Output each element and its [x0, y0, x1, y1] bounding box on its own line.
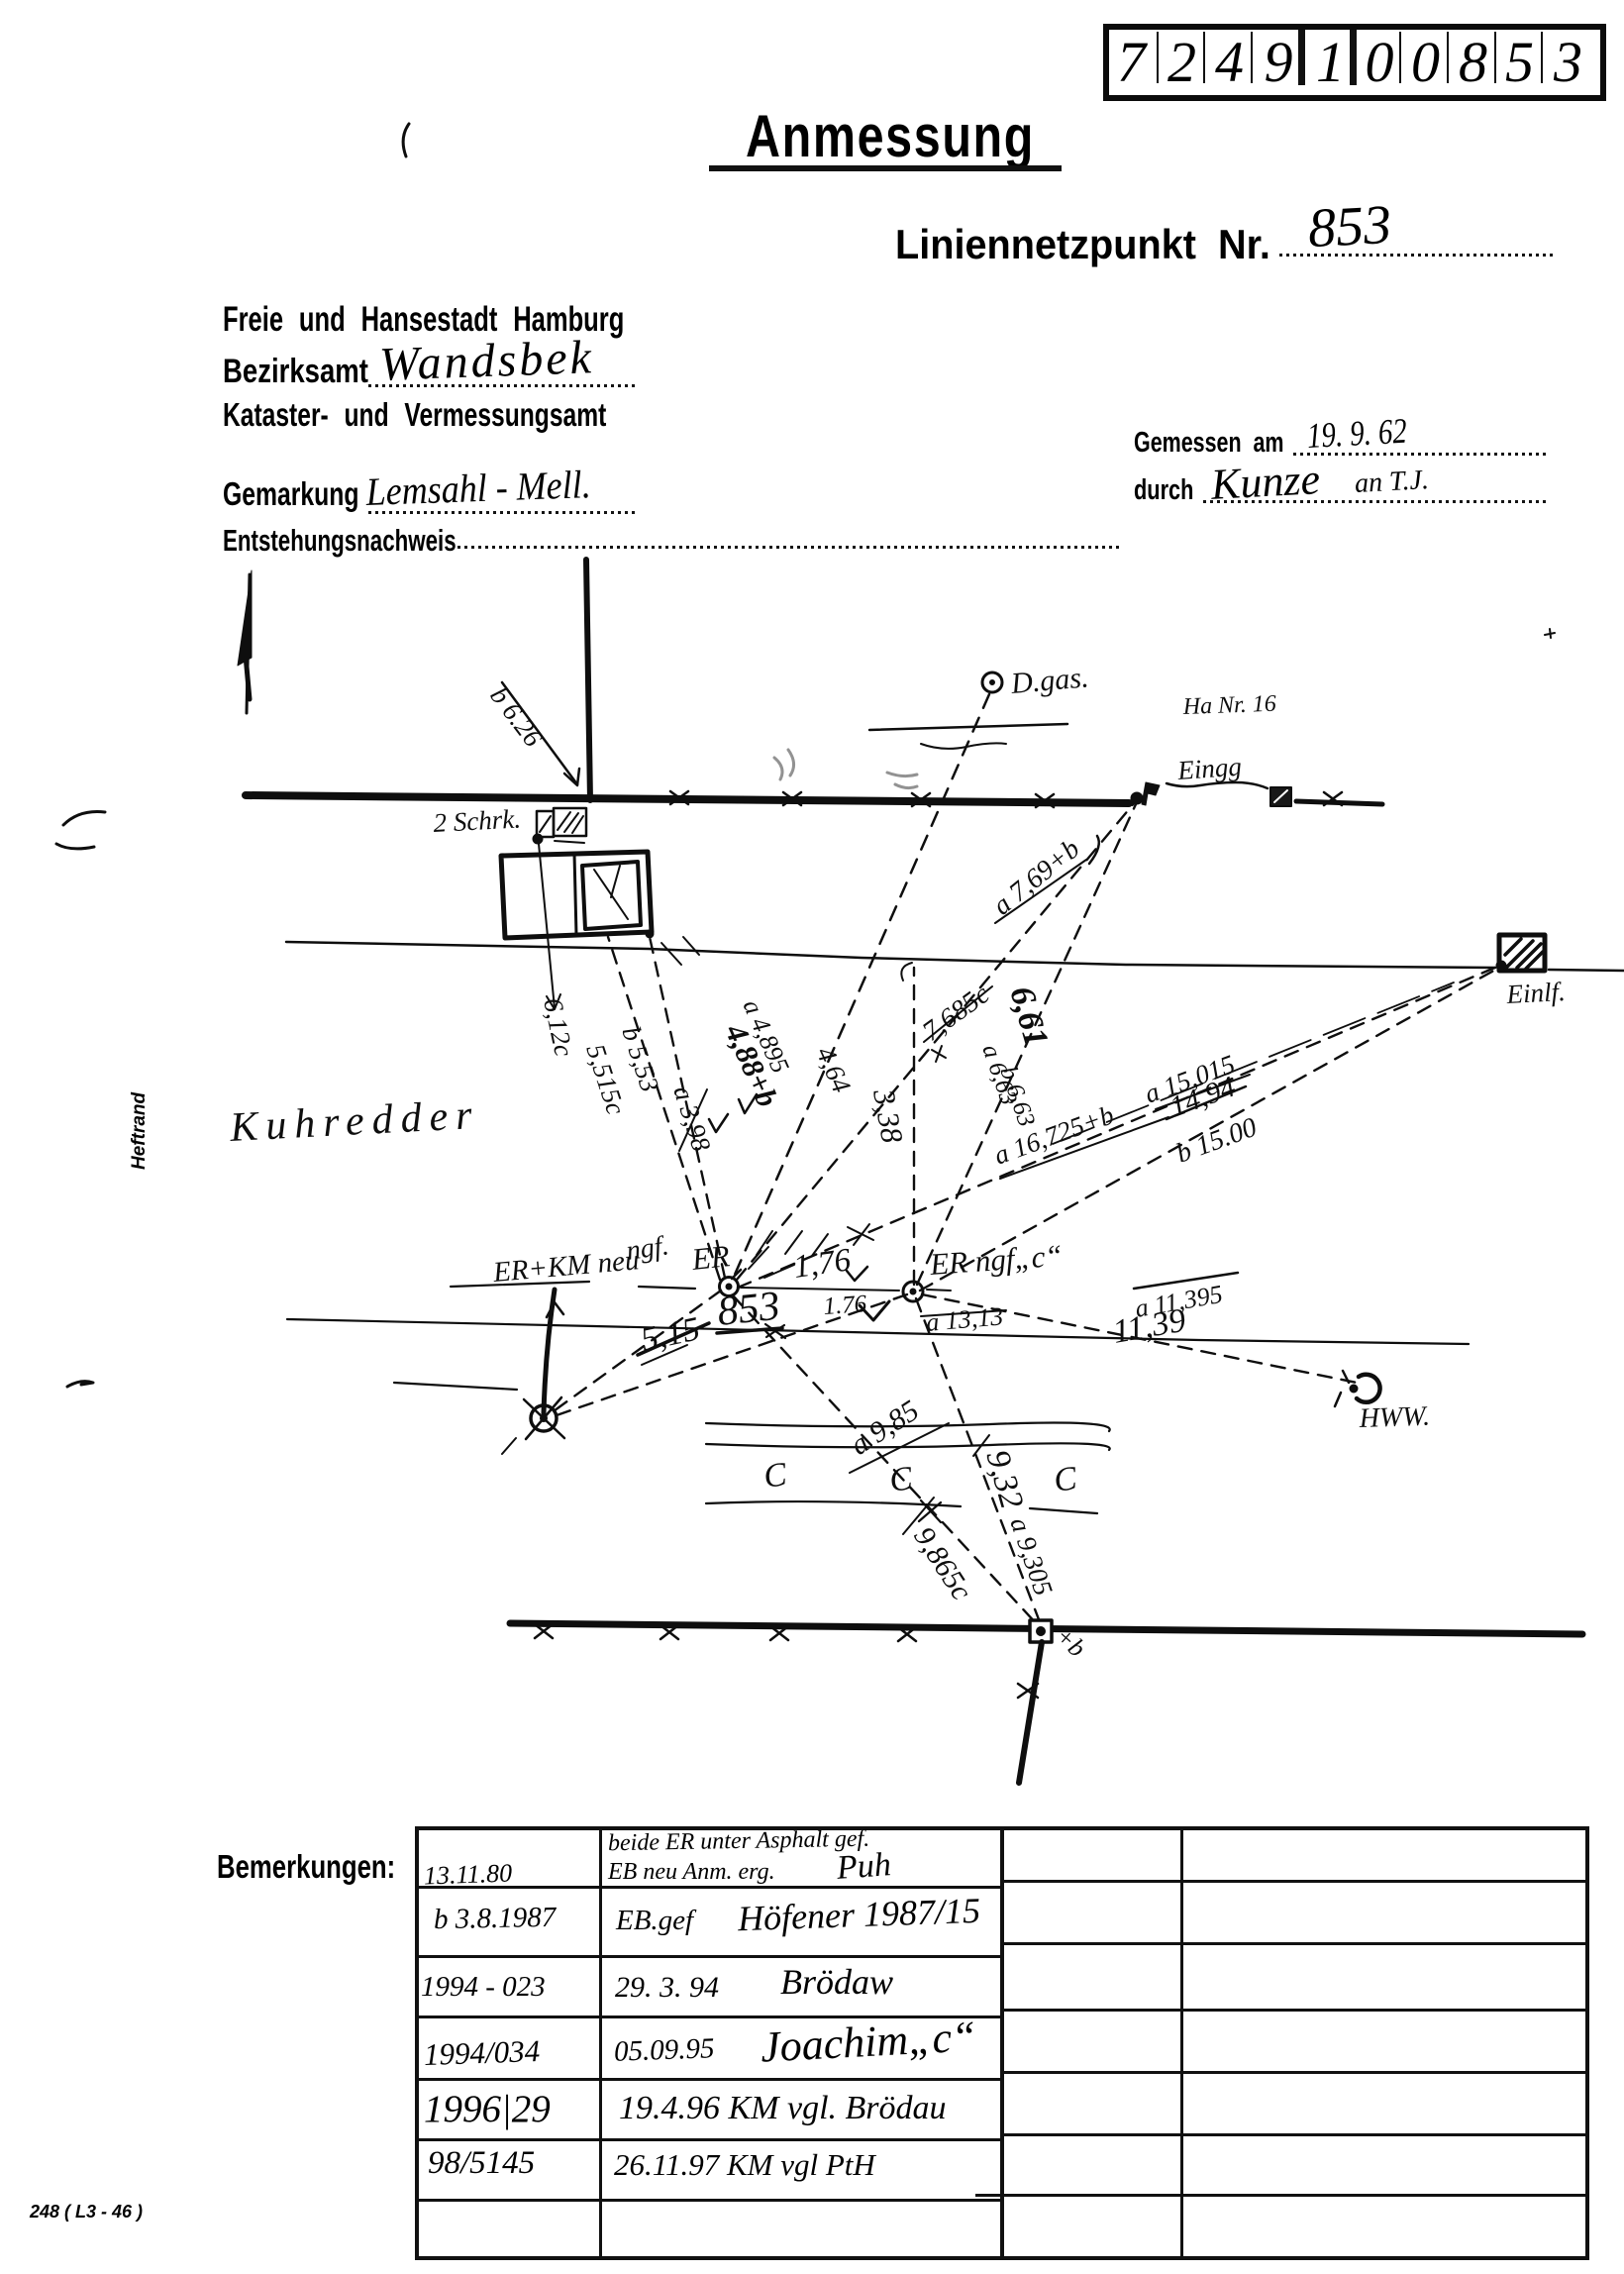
svg-text:Kuhredder: Kuhredder	[228, 1092, 480, 1151]
svg-text:7,685c: 7,685c	[917, 979, 996, 1048]
svg-text:HWW.: HWW.	[1358, 1401, 1430, 1435]
svg-text:a 9,85: a 9,85	[845, 1394, 925, 1462]
svg-text:ER: ER	[689, 1238, 731, 1277]
svg-text:3,38: 3,38	[866, 1085, 910, 1146]
svg-text:Einlf.: Einlf.	[1505, 977, 1567, 1009]
svg-text:853: 853	[715, 1284, 781, 1335]
svg-text:2 Schrk.: 2 Schrk.	[433, 803, 522, 838]
svg-text:b 15.00: b 15.00	[1172, 1112, 1262, 1170]
svg-text:11,39: 11,39	[1110, 1302, 1188, 1351]
svg-text:6,61: 6,61	[1002, 982, 1056, 1051]
svg-text:a 13,13: a 13,13	[925, 1301, 1004, 1337]
svg-text:1.76: 1.76	[823, 1291, 868, 1320]
svg-text:5,15: 5,15	[638, 1310, 703, 1359]
svg-text:b 6.26: b 6.26	[484, 681, 549, 753]
svg-text:C: C	[761, 1456, 789, 1496]
svg-text:9,865c: 9,865c	[907, 1521, 978, 1606]
svg-text:C: C	[887, 1460, 915, 1499]
svg-text:6,12c: 6,12c	[538, 995, 579, 1059]
svg-text:Ha Nr. 16: Ha Nr. 16	[1181, 691, 1276, 720]
svg-text:1,76: 1,76	[791, 1242, 854, 1286]
svg-text:a 9,305: a 9,305	[1004, 1513, 1059, 1599]
svg-text:Eingg: Eingg	[1175, 752, 1242, 785]
svg-text:ER ngf„c“: ER ngf„c“	[928, 1238, 1064, 1282]
svg-text:ER+KM neu: ER+KM neu	[491, 1244, 641, 1289]
svg-text:C: C	[1052, 1460, 1079, 1499]
svg-text:9,32: 9,32	[978, 1446, 1030, 1512]
svg-text:ngf.: ngf.	[625, 1230, 671, 1267]
svg-text:4,64: 4,64	[811, 1042, 858, 1096]
svg-text:D.gas.: D.gas.	[1009, 661, 1090, 700]
